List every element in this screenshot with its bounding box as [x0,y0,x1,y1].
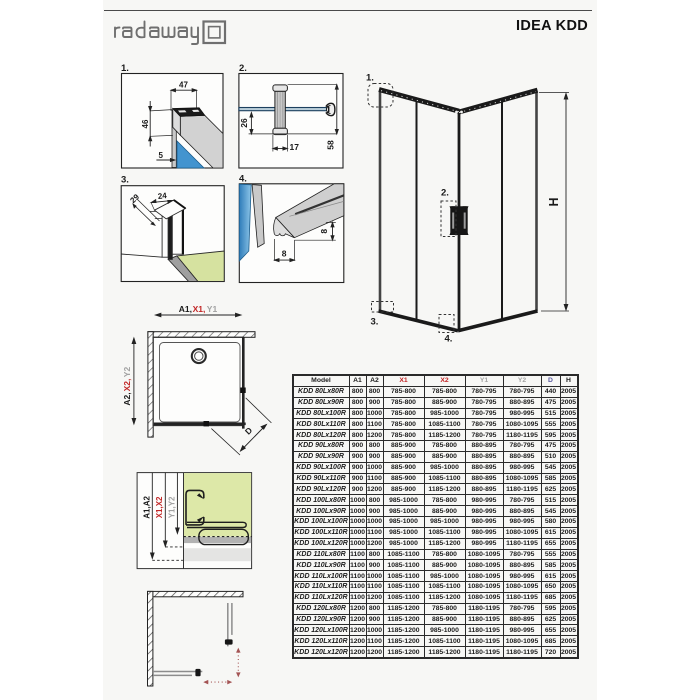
svg-text:A2,: A2, [122,392,132,405]
svg-text:17: 17 [290,142,300,152]
svg-text:H: H [547,197,561,206]
svg-text:1.: 1. [121,63,129,74]
svg-text:8: 8 [282,249,287,259]
svg-text:3.: 3. [371,317,379,328]
svg-text:3.: 3. [121,175,129,186]
svg-text:X2,: X2, [122,379,132,392]
svg-text:24: 24 [157,191,167,201]
svg-text:26: 26 [239,118,249,128]
svg-text:2.: 2. [441,188,449,199]
svg-text:47: 47 [179,81,188,90]
svg-text:58: 58 [326,140,336,150]
svg-text:4.: 4. [239,174,247,185]
svg-text:X1,X2: X1,X2 [155,496,164,518]
svg-text:4.: 4. [445,334,453,345]
svg-text:1.: 1. [366,73,374,84]
svg-text:2.: 2. [239,63,247,74]
svg-text:A1,: A1, [179,304,192,314]
svg-text:Y1,Y2: Y1,Y2 [167,496,176,518]
svg-text:X1,: X1, [193,304,206,314]
svg-text:Y2: Y2 [122,367,132,378]
svg-text:5: 5 [159,151,164,160]
svg-text:Y1: Y1 [207,304,218,314]
svg-text:A1,A2: A1,A2 [143,496,152,519]
svg-text:46: 46 [141,119,150,128]
svg-text:8: 8 [319,229,329,234]
svg-text:D: D [243,425,254,436]
